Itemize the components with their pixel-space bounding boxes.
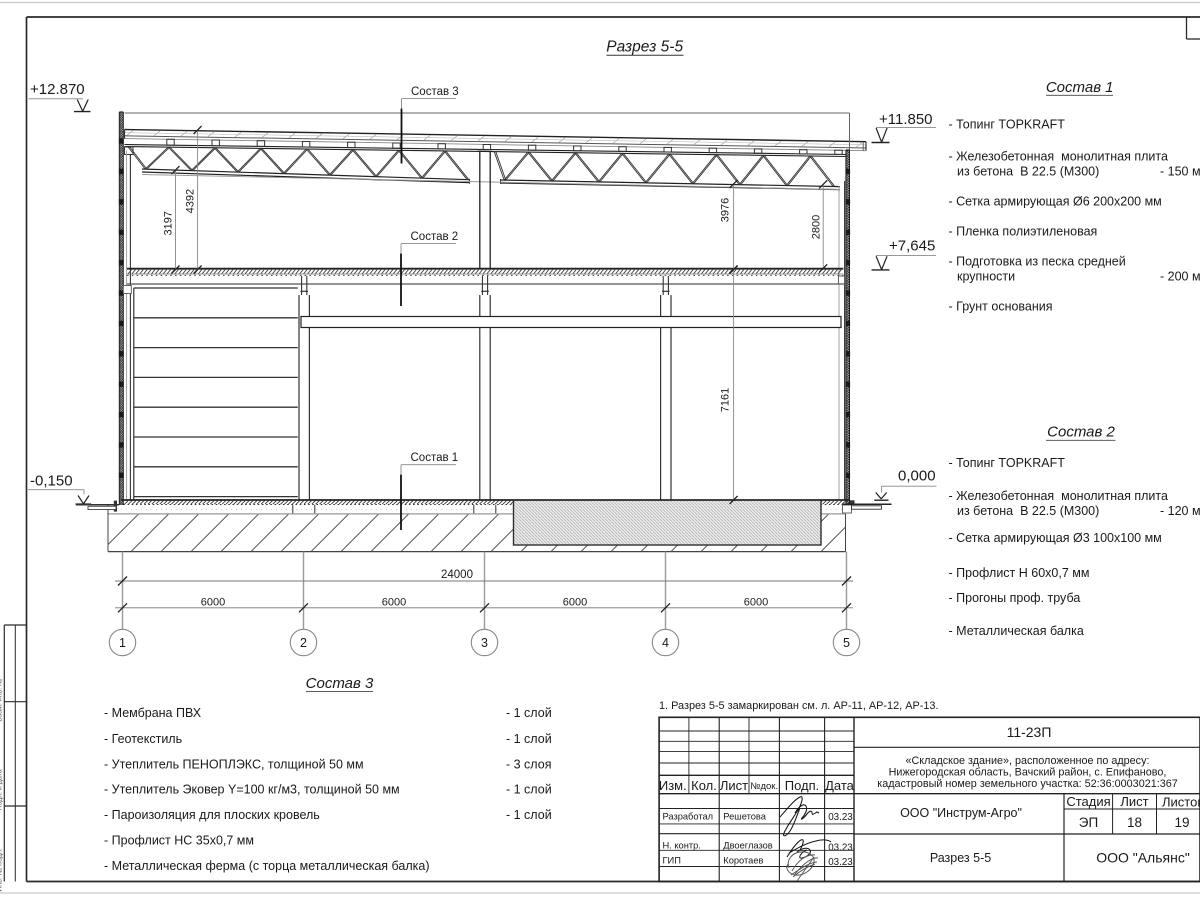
svg-text:№док.: №док. xyxy=(750,781,778,792)
svg-text:ООО "Инструм-Агро": ООО "Инструм-Агро" xyxy=(900,806,1022,820)
svg-text:4392: 4392 xyxy=(184,189,196,213)
svg-text:из бетона В 22.5 (М300): из бетона В 22.5 (М300) xyxy=(957,504,1099,518)
svg-text:Состав 1: Состав 1 xyxy=(411,452,459,464)
svg-text:крупности: крупности xyxy=(957,270,1015,284)
svg-text:ЭП: ЭП xyxy=(1079,815,1098,830)
svg-text:- Железобетонная монолитная п: - Железобетонная монолитная плита xyxy=(949,489,1168,503)
svg-text:- 1 слой: - 1 слой xyxy=(506,808,552,822)
svg-text:- 1 слой: - 1 слой xyxy=(506,706,552,720)
svg-text:Дата: Дата xyxy=(825,778,855,793)
svg-text:- Мембрана ПВХ: - Мембрана ПВХ xyxy=(104,706,202,720)
svg-text:1. Разрез 5-5 замаркирован см.: 1. Разрез 5-5 замаркирован см. л. АР-11,… xyxy=(659,700,939,712)
svg-text:ООО "Альянс": ООО "Альянс" xyxy=(1096,850,1190,866)
svg-text:- Пленка полиэтиленовая: - Пленка полиэтиленовая xyxy=(949,225,1098,239)
svg-text:- Топинг TOPKRAFT: - Топинг TOPKRAFT xyxy=(949,456,1066,470)
svg-text:Нижегородская область, Вачский: Нижегородская область, Вачский район, с.… xyxy=(889,767,1167,779)
svg-text:- Сетка армирующая Ø3 100х100: - Сетка армирующая Ø3 100х100 мм xyxy=(949,531,1162,545)
svg-text:- Профлист НС 35х0,7 мм: - Профлист НС 35х0,7 мм xyxy=(104,834,254,848)
svg-text:24000: 24000 xyxy=(441,569,473,581)
svg-text:11-23П: 11-23П xyxy=(1007,724,1052,740)
svg-text:0,000: 0,000 xyxy=(898,468,936,485)
svg-text:Двоеглазов: Двоеглазов xyxy=(723,841,772,851)
svg-text:- Пароизоляция для плоских кро: - Пароизоляция для плоских кровель xyxy=(104,808,320,822)
svg-text:Лист: Лист xyxy=(1120,794,1148,809)
svg-text:Н. контр.: Н. контр. xyxy=(663,841,701,851)
svg-text:Состав 2: Состав 2 xyxy=(1047,424,1115,441)
svg-text:03.23: 03.23 xyxy=(828,812,853,823)
svg-text:Изм.: Изм. xyxy=(659,778,687,793)
svg-text:5: 5 xyxy=(843,636,850,650)
svg-text:Подп.: Подп. xyxy=(785,778,820,793)
svg-text:Состав 2: Состав 2 xyxy=(411,231,459,243)
svg-text:- Топинг TOPKRAFT: - Топинг TOPKRAFT xyxy=(949,118,1066,132)
svg-text:ГИП: ГИП xyxy=(663,856,681,866)
svg-text:- Железобетонная монолитная п: - Железобетонная монолитная плита xyxy=(949,150,1168,164)
svg-text:Разрез 5-5: Разрез 5-5 xyxy=(930,851,991,865)
svg-text:Разработал: Разработал xyxy=(663,812,714,822)
svg-text:-0,150: -0,150 xyxy=(30,473,73,490)
svg-text:- Геотекстиль: - Геотекстиль xyxy=(104,732,182,746)
svg-text:7161: 7161 xyxy=(719,388,731,412)
svg-text:3976: 3976 xyxy=(719,198,731,222)
svg-text:Инв. № подл.: Инв. № подл. xyxy=(0,848,4,892)
svg-text:- Профлист Н 60х0,7 мм: - Профлист Н 60х0,7 мм xyxy=(949,566,1090,580)
svg-text:- Металлическая ферма (с торца: - Металлическая ферма (с торца металличе… xyxy=(104,859,430,873)
svg-text:- Прогоны проф. труба: - Прогоны проф. труба xyxy=(949,591,1081,605)
svg-text:Состав 3: Состав 3 xyxy=(306,675,374,692)
svg-text:- 150 мм: - 150 мм xyxy=(1160,165,1200,179)
svg-text:Взам. инв. №: Взам. инв. № xyxy=(0,678,4,721)
svg-text:кадастровый номер земельного у: кадастровый номер земельного участка: 52… xyxy=(877,778,1177,790)
svg-text:- Утеплитель ПЕНОПЛЭКС, толщин: - Утеплитель ПЕНОПЛЭКС, толщиной 50 мм xyxy=(104,758,364,772)
svg-text:19: 19 xyxy=(1174,815,1189,830)
svg-text:- 1 слой: - 1 слой xyxy=(506,732,552,746)
svg-text:Подп. и дата: Подп. и дата xyxy=(0,769,4,810)
svg-text:Кол.: Кол. xyxy=(691,778,717,793)
svg-text:+12.870: +12.870 xyxy=(30,81,85,98)
svg-text:Коротаев: Коротаев xyxy=(723,856,763,866)
svg-text:4: 4 xyxy=(662,636,669,650)
svg-text:6000: 6000 xyxy=(382,596,406,608)
svg-text:Лист: Лист xyxy=(720,778,748,793)
svg-text:- Грунт основания: - Грунт основания xyxy=(949,300,1053,314)
svg-text:из бетона В 22.5 (М300): из бетона В 22.5 (М300) xyxy=(957,165,1099,179)
svg-text:- Металлическая балка: - Металлическая балка xyxy=(949,624,1084,638)
svg-text:- Сетка армирующая Ø6 200х200: - Сетка армирующая Ø6 200х200 мм xyxy=(949,195,1162,209)
svg-text:Состав 3: Состав 3 xyxy=(411,86,459,98)
svg-text:6000: 6000 xyxy=(744,596,768,608)
svg-text:- 1 слой: - 1 слой xyxy=(506,783,552,797)
svg-text:Решетова: Решетова xyxy=(723,812,766,822)
svg-text:18: 18 xyxy=(1127,815,1142,830)
svg-text:Стадия: Стадия xyxy=(1066,794,1110,809)
svg-text:- Утеплитель Эковер Y=100 кг/м: - Утеплитель Эковер Y=100 кг/м3, толщино… xyxy=(104,783,400,797)
svg-text:3: 3 xyxy=(481,636,488,650)
svg-text:- 200 мм: - 200 мм xyxy=(1160,270,1200,284)
svg-text:3197: 3197 xyxy=(162,211,174,235)
svg-text:Состав 1: Состав 1 xyxy=(1046,79,1114,96)
svg-text:Разрез 5-5: Разрез 5-5 xyxy=(606,39,683,56)
svg-text:- 3 слоя: - 3 слоя xyxy=(506,758,551,772)
svg-text:03.23: 03.23 xyxy=(828,857,853,868)
svg-text:1: 1 xyxy=(119,636,126,650)
svg-text:Листов: Листов xyxy=(1162,795,1200,810)
svg-text:+7,645: +7,645 xyxy=(889,238,935,255)
svg-text:+11.850: +11.850 xyxy=(879,111,933,128)
svg-text:«Складское здание», расположен: «Складское здание», расположенное по адр… xyxy=(906,755,1150,767)
svg-text:2: 2 xyxy=(300,636,307,650)
svg-text:- Подготовка из песка средней: - Подготовка из песка средней xyxy=(949,255,1126,269)
svg-text:6000: 6000 xyxy=(563,596,587,608)
svg-text:2800: 2800 xyxy=(810,215,822,239)
svg-text:03.23: 03.23 xyxy=(828,843,853,854)
svg-text:6000: 6000 xyxy=(201,596,225,608)
svg-text:- 120 мм: - 120 мм xyxy=(1160,504,1200,518)
